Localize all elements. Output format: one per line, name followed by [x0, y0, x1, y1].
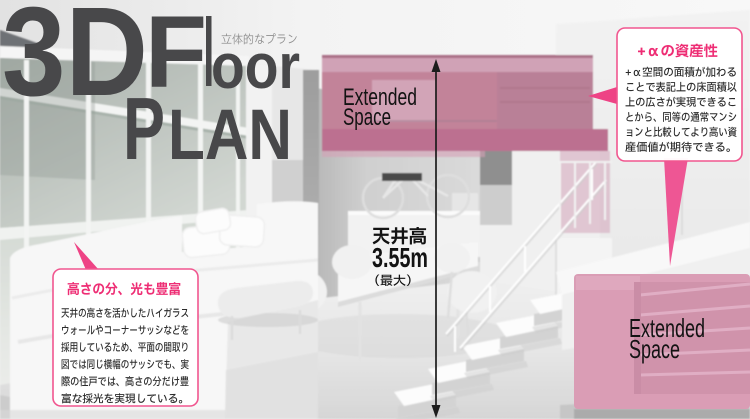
svg-text:Space: Space: [629, 334, 680, 364]
svg-text:LAN: LAN: [168, 96, 292, 175]
svg-text:oor: oor: [211, 30, 300, 102]
svg-text:3.55m: 3.55m: [372, 242, 428, 273]
svg-text:P: P: [123, 79, 165, 178]
svg-text:Space: Space: [343, 104, 391, 131]
